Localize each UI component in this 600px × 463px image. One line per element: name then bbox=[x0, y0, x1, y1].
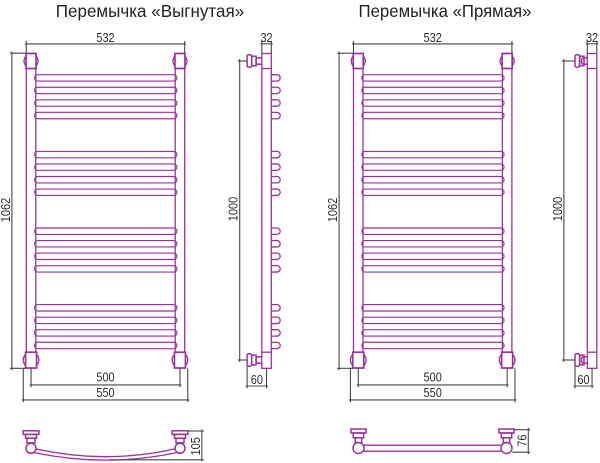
svg-text:Перемычка «Прямая»: Перемычка «Прямая» bbox=[359, 1, 532, 21]
svg-text:532: 532 bbox=[96, 30, 114, 45]
svg-text:500: 500 bbox=[96, 369, 114, 384]
svg-text:Перемычка «Выгнутая»: Перемычка «Выгнутая» bbox=[56, 1, 245, 21]
svg-text:1000: 1000 bbox=[226, 197, 241, 221]
svg-text:1062: 1062 bbox=[0, 198, 13, 222]
svg-text:32: 32 bbox=[586, 30, 598, 45]
svg-text:105: 105 bbox=[188, 437, 203, 455]
svg-text:32: 32 bbox=[260, 30, 272, 45]
svg-text:500: 500 bbox=[424, 369, 442, 384]
svg-text:532: 532 bbox=[424, 30, 442, 45]
svg-text:1000: 1000 bbox=[550, 197, 565, 221]
svg-text:1062: 1062 bbox=[325, 198, 340, 222]
svg-text:60: 60 bbox=[251, 372, 263, 387]
svg-text:76: 76 bbox=[514, 435, 529, 447]
svg-text:550: 550 bbox=[424, 385, 442, 400]
svg-text:550: 550 bbox=[96, 385, 114, 400]
svg-text:60: 60 bbox=[577, 372, 589, 387]
